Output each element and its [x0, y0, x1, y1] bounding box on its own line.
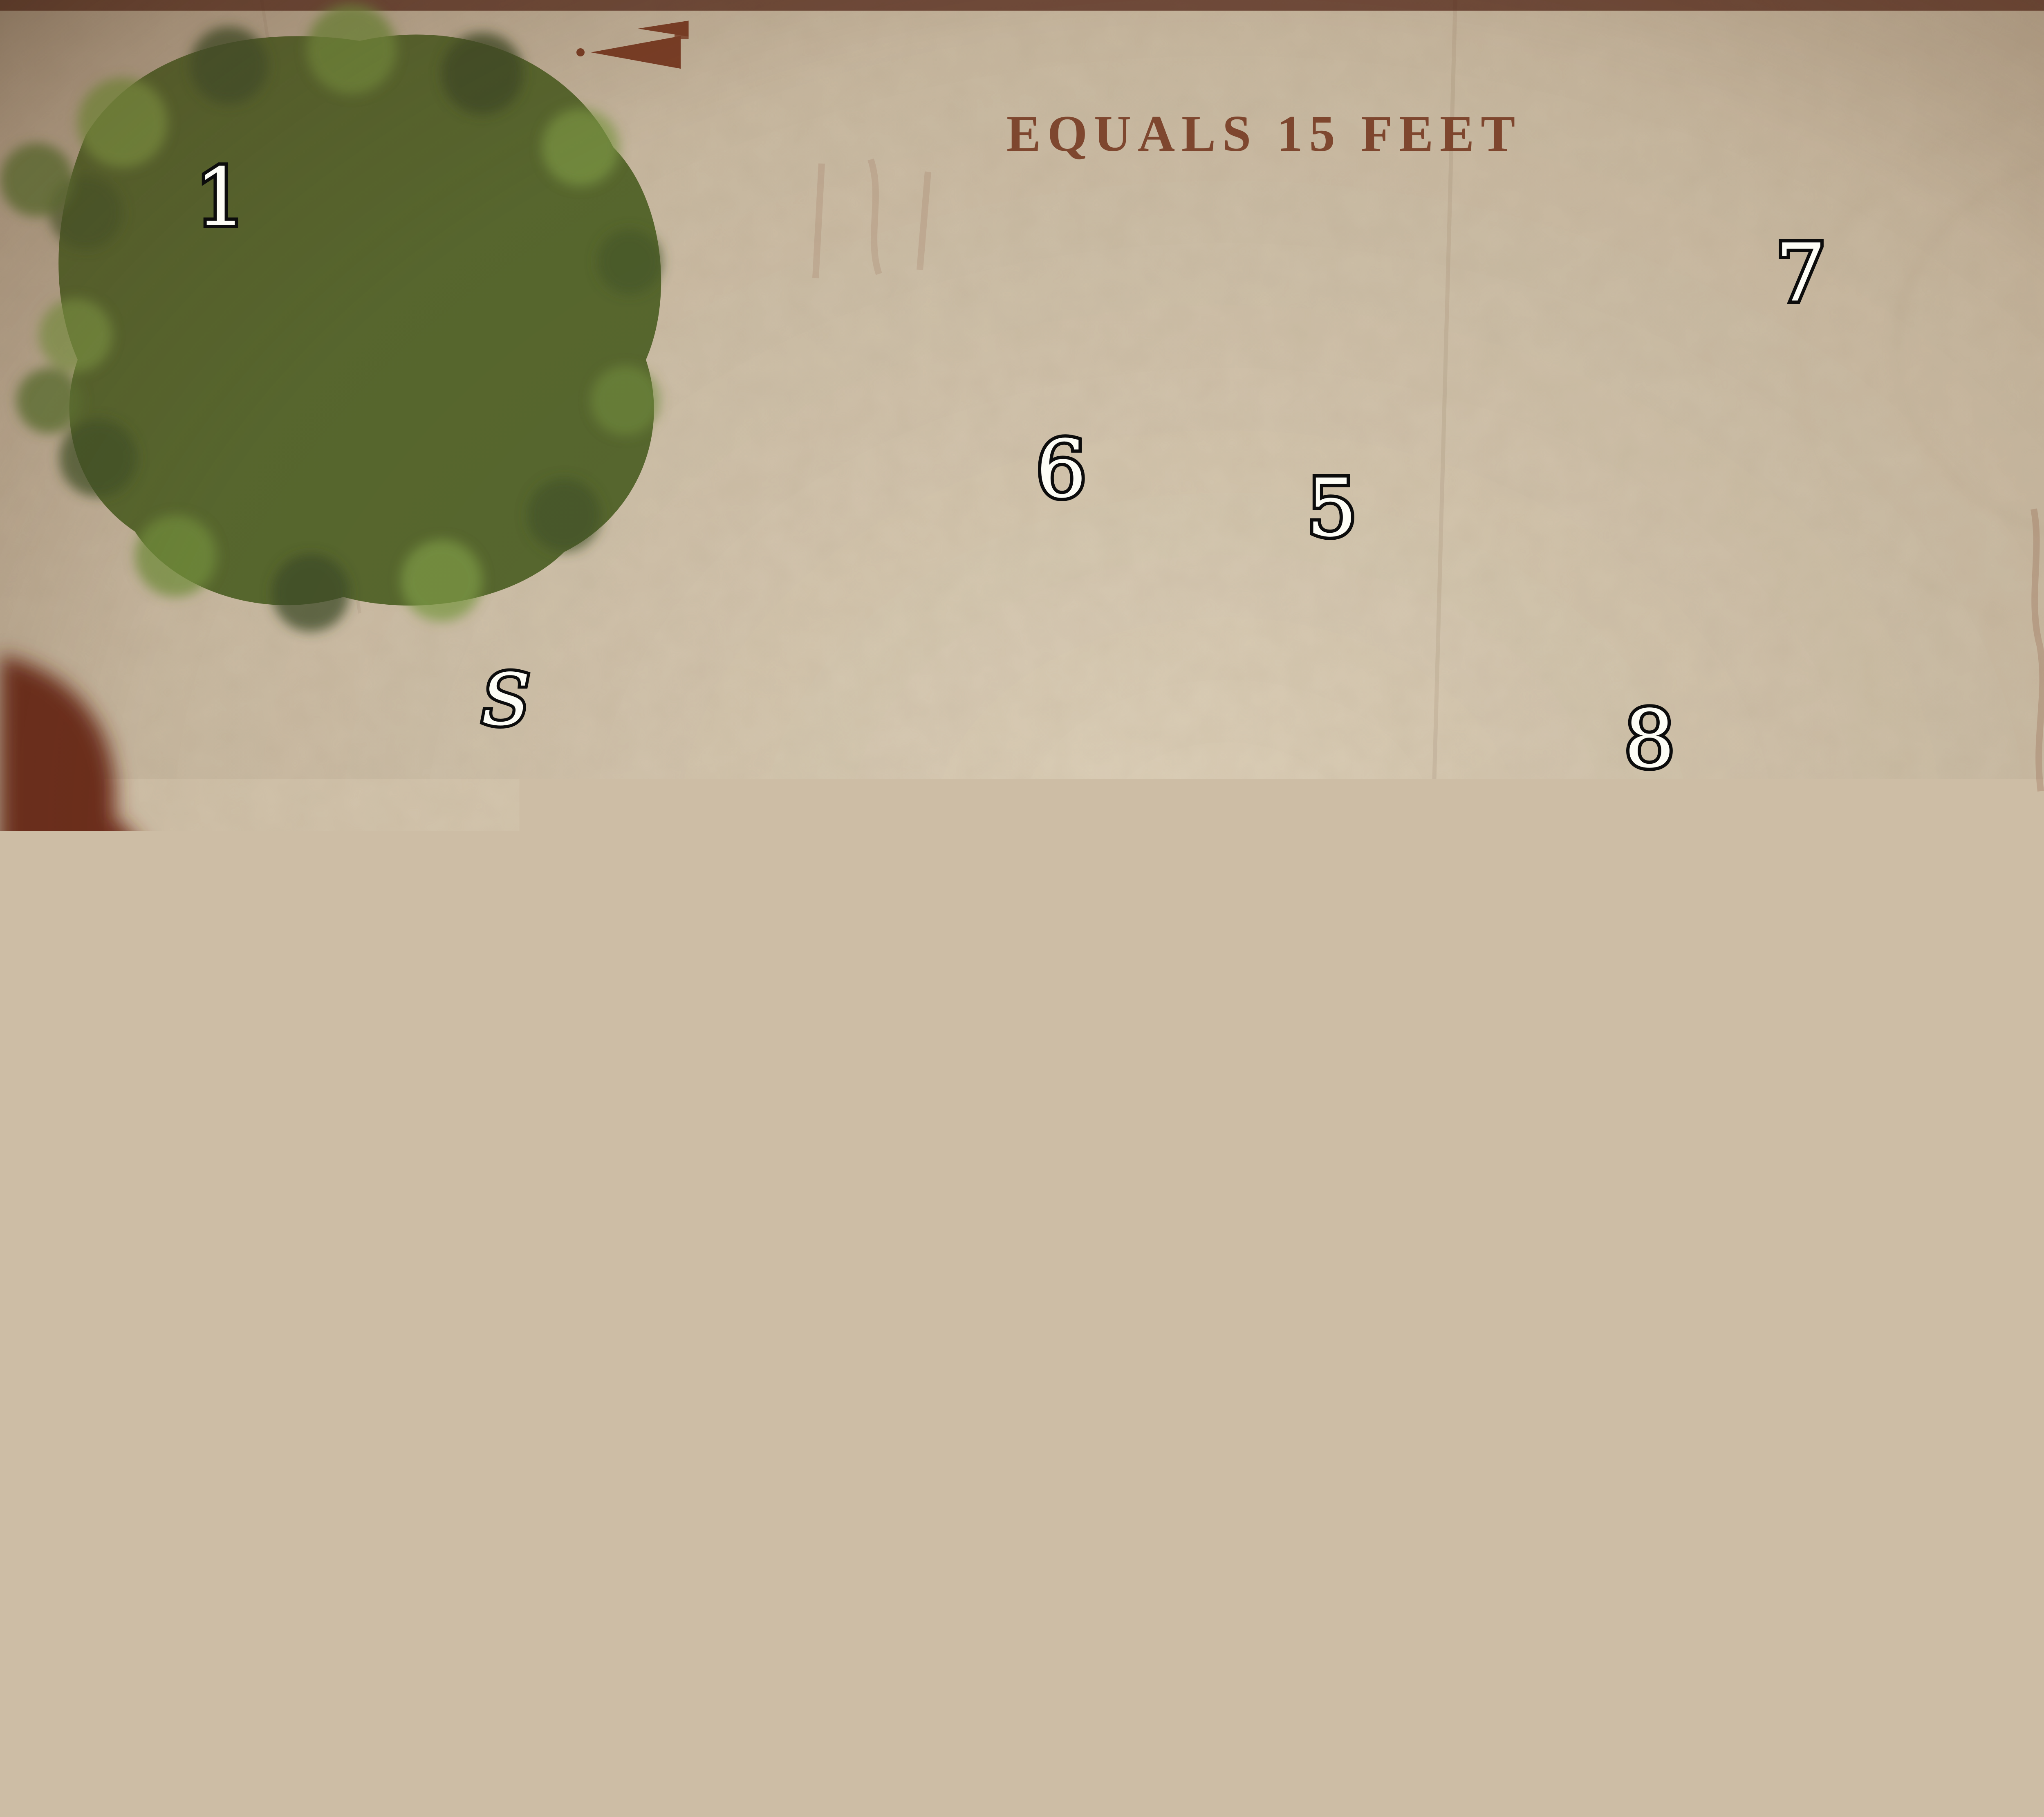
map-title: NERONVAIN'S STRONGHOLD: [61, 1513, 1219, 1817]
scale-legend-text: EQUALS 15 FEET: [1006, 105, 1522, 164]
map-title-line1: NERONVAIN'S: [61, 1513, 1219, 1689]
room-label: 10: [1948, 1283, 2044, 1376]
room-label: 4: [758, 1371, 808, 1464]
secret-door-marker: S: [481, 659, 530, 742]
room-label: 6: [1036, 423, 1087, 516]
room-label: 2: [911, 854, 961, 947]
room-label: 1: [195, 151, 246, 244]
room-label: 3: [363, 928, 414, 1021]
secret-door-marker: S: [1710, 809, 1759, 892]
secret-door-marker: S: [1871, 980, 1920, 1063]
room-label: 5: [1307, 462, 1357, 554]
map-title-line2: STRONGHOLD: [114, 1689, 1219, 1817]
room-label: 7: [1775, 227, 1826, 319]
fantasy-dungeon-map: 1 2 3 4 5 6 7 8 9 10 S S S N EQUALS 15 F…: [0, 0, 2044, 1817]
room-label: 8: [1624, 693, 1675, 785]
room-label: 9: [1771, 883, 1822, 976]
